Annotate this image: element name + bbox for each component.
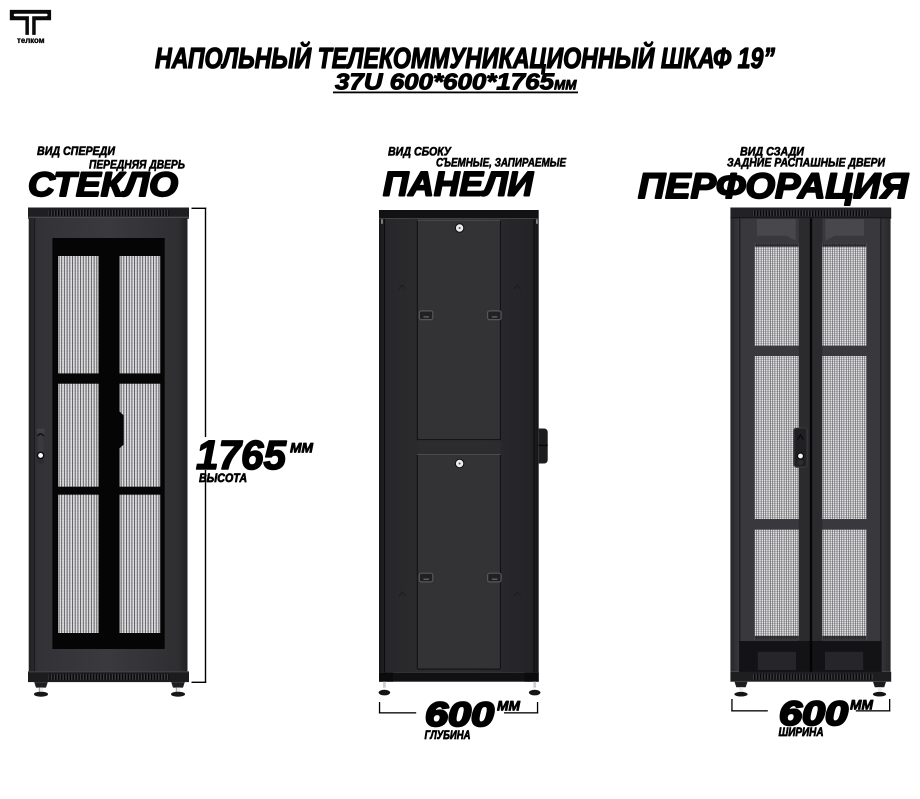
svg-text:телком: телком xyxy=(17,36,45,45)
svg-text:СТЕКЛО: СТЕКЛО xyxy=(28,166,178,204)
svg-text:ВЫСОТА: ВЫСОТА xyxy=(199,473,247,485)
svg-text:ШИРИНА: ШИРИНА xyxy=(779,725,824,739)
svg-text:37U 600*600*1765: 37U 600*600*1765 xyxy=(335,69,555,95)
svg-text:ПЕРФОРАЦИЯ: ПЕРФОРАЦИЯ xyxy=(638,167,910,206)
svg-text:ММ: ММ xyxy=(497,699,521,714)
svg-text:ММ: ММ xyxy=(850,698,874,713)
svg-text:ПАНЕЛИ: ПАНЕЛИ xyxy=(383,166,535,204)
svg-text:ВИД СПЕРЕДИ: ВИД СПЕРЕДИ xyxy=(37,146,116,158)
svg-text:ГЛУБИНА: ГЛУБИНА xyxy=(425,728,471,742)
svg-text:ММ: ММ xyxy=(554,78,577,93)
svg-text:ММ: ММ xyxy=(290,441,314,456)
svg-text:1765: 1765 xyxy=(196,432,287,478)
